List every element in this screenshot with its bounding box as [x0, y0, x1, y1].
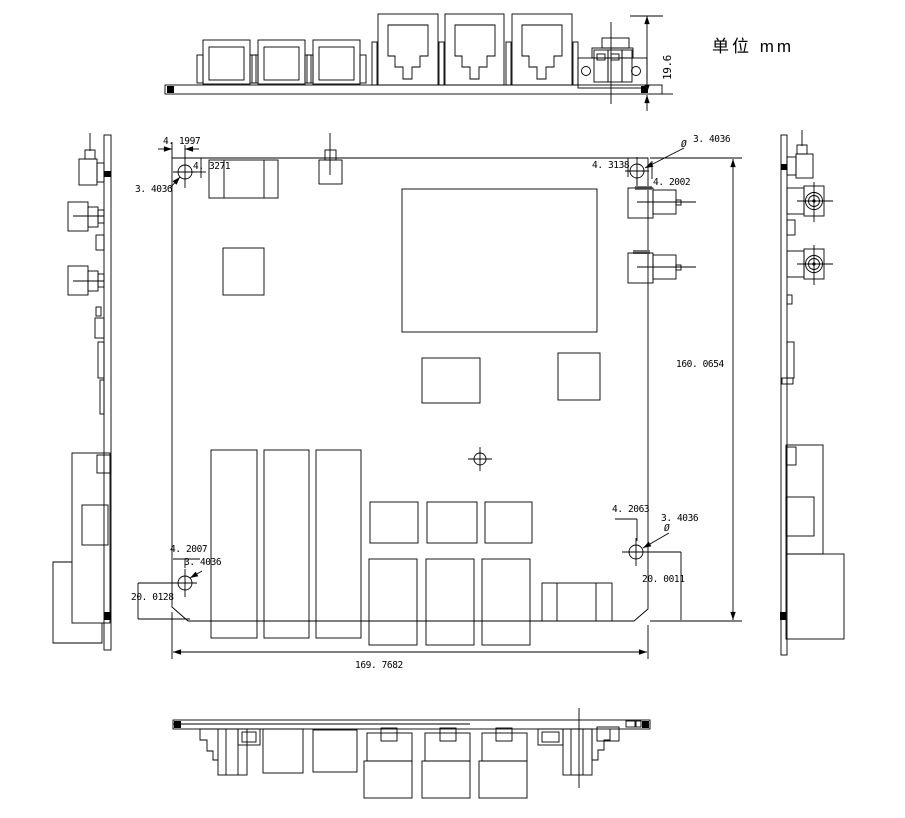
board-strip: [173, 720, 650, 729]
dim-hole-bl-bottom-distance: 20. 0128: [131, 593, 174, 603]
left-side-profile-view: [53, 133, 111, 650]
rj45-connector-2: [445, 14, 504, 85]
main-chip: [402, 189, 597, 332]
connector-block-side: [780, 445, 844, 639]
dim-board-width: 169. 7682: [355, 661, 403, 671]
dim-hole-br-bottom-distance: 20. 0011: [642, 575, 685, 585]
dim-hole-br-offset-x: 4. 2063: [612, 505, 649, 515]
panel-board-strip: [165, 85, 662, 94]
component-sq-2: [427, 502, 477, 543]
drawing-lines: [0, 0, 905, 818]
center-fiducial: [468, 447, 492, 471]
sma-connector-2: [628, 250, 696, 283]
component-sq-1: [370, 502, 418, 543]
mechanical-drawing-canvas: 19.6 单位 mm 4. 1997 4. 3271 3. 4036 Ø 3. …: [0, 0, 905, 818]
component-sq-3: [485, 502, 532, 543]
bottom-jack-profile-1: [364, 728, 412, 798]
usb-connector-3: [307, 40, 366, 84]
dim-hole-tr-diameter: 3. 4036: [693, 135, 730, 145]
dim-panel-height-lines: [630, 16, 663, 111]
antenna-connector-side: [79, 133, 111, 185]
bottom-right-connector: [542, 583, 612, 621]
dim-hole-tl-offset-x: 4. 1997: [163, 137, 200, 147]
bottom-connector-tall-3: [316, 450, 361, 638]
dim-hole-tl-offset-y: 4. 3271: [193, 162, 230, 172]
sma-end-on-1: [787, 182, 833, 222]
bottom-profile-view: [173, 708, 650, 798]
ic-chip-mid: [422, 358, 480, 403]
dim-panel-height: 19.6: [663, 55, 673, 80]
rear-panel-top-view: [165, 14, 673, 111]
right-side-profile-view: [780, 130, 844, 655]
usb-connector-2: [252, 40, 311, 84]
sma-side-1: [68, 202, 104, 231]
ic-chip-right: [558, 353, 600, 400]
diameter-symbol-top-right: Ø: [681, 140, 686, 150]
dim-hole-tr-offset-y: 4. 3138: [592, 161, 629, 171]
board-outline: [172, 158, 648, 621]
bottom-jack-profile-3: [479, 728, 527, 798]
bottom-connector-tall-1: [211, 450, 257, 638]
units-label: 单位 mm: [712, 42, 794, 52]
terminal-block: [578, 22, 647, 104]
rj45-connector-3: [512, 14, 572, 85]
dim-hole-bl-offset-x: 4. 2007: [170, 545, 207, 555]
bottom-jack-profile-2: [422, 728, 470, 798]
bottom-jack-3: [482, 559, 530, 645]
left-heatsink-cluster: [200, 729, 357, 775]
dim-board-height: 160. 0654: [676, 360, 724, 370]
usb-connector-1: [197, 40, 256, 84]
ic-chip-left: [223, 248, 264, 295]
dim-hole-tl-diameter: 3. 4036: [135, 185, 172, 195]
connector-block-side: [53, 453, 111, 643]
bottom-jack-1: [369, 559, 417, 645]
bottom-jack-2: [426, 559, 474, 645]
antenna-connector-side: [781, 130, 813, 178]
antenna-post: [319, 133, 342, 184]
dim-hole-bl-diameter: 3. 4036: [184, 558, 221, 568]
sma-side-2: [68, 266, 104, 295]
bottom-connector-tall-2: [264, 450, 309, 638]
sma-end-on-2: [787, 245, 833, 285]
rj45-connector-1: [378, 14, 438, 85]
diameter-symbol-bottom-right: Ø: [664, 524, 669, 534]
dim-sma-offset-y: 4. 2002: [653, 178, 690, 188]
